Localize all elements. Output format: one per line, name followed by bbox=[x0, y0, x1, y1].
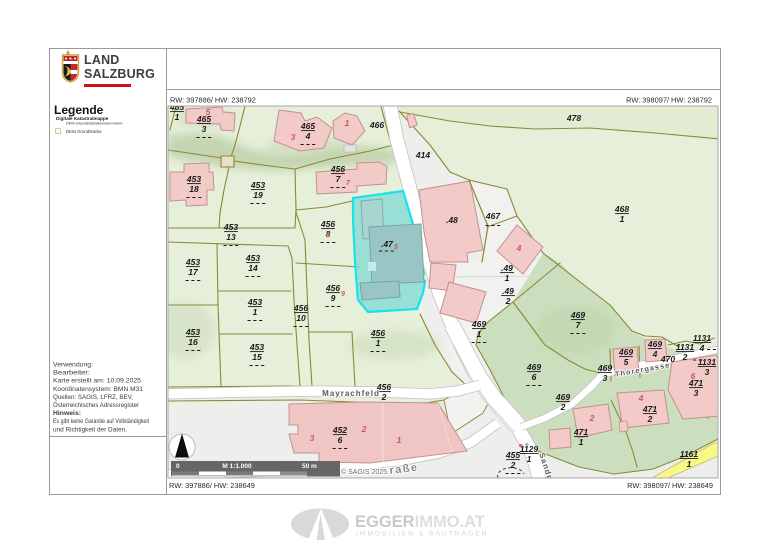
svg-text:Österreichisches Adressregiste: Österreichisches Adressregister bbox=[53, 401, 140, 409]
svg-text:453: 453 bbox=[247, 297, 262, 307]
svg-text:1: 1 bbox=[477, 329, 482, 339]
svg-text:453: 453 bbox=[223, 222, 238, 232]
svg-text:15: 15 bbox=[252, 352, 262, 362]
svg-text:0: 0 bbox=[176, 463, 180, 470]
svg-text:468: 468 bbox=[614, 204, 629, 214]
svg-text:Legende: Legende bbox=[54, 103, 104, 117]
svg-text:452: 452 bbox=[332, 425, 347, 435]
svg-text:Bearbeiter:: Bearbeiter: bbox=[53, 370, 90, 377]
svg-text:5: 5 bbox=[624, 357, 629, 367]
svg-text:3: 3 bbox=[705, 367, 710, 377]
svg-text:471: 471 bbox=[642, 404, 657, 414]
svg-text:456: 456 bbox=[325, 283, 340, 293]
svg-text:.49: .49 bbox=[501, 263, 513, 273]
svg-text:4: 4 bbox=[638, 393, 644, 403]
svg-text:471: 471 bbox=[573, 427, 588, 437]
svg-text:.47: .47 bbox=[381, 239, 394, 249]
svg-text:18: 18 bbox=[189, 184, 199, 194]
svg-text:456: 456 bbox=[320, 219, 335, 229]
svg-text:Karte erstellt am: 10.09.2025: Karte erstellt am: 10.09.2025 bbox=[53, 378, 141, 385]
svg-text:19: 19 bbox=[253, 190, 263, 200]
svg-text:465: 465 bbox=[300, 121, 315, 131]
svg-text:453: 453 bbox=[186, 174, 201, 184]
svg-text:453: 453 bbox=[245, 253, 260, 263]
svg-text:.48: .48 bbox=[446, 215, 458, 225]
svg-text:3: 3 bbox=[694, 388, 699, 398]
svg-text:414: 414 bbox=[415, 150, 430, 160]
svg-text:2: 2 bbox=[381, 392, 387, 402]
svg-text:IMMOBILIEN & BAUTRÄGER: IMMOBILIEN & BAUTRÄGER bbox=[356, 530, 488, 538]
svg-text:1129: 1129 bbox=[520, 444, 539, 454]
svg-text:1: 1 bbox=[620, 214, 625, 224]
svg-text:EGGERIMMO.AT: EGGERIMMO.AT bbox=[355, 513, 485, 531]
svg-text:9: 9 bbox=[331, 293, 336, 303]
svg-text:469: 469 bbox=[597, 363, 612, 373]
svg-text:Verwendung:: Verwendung: bbox=[53, 362, 93, 369]
svg-text:469: 469 bbox=[555, 392, 570, 402]
svg-text:2: 2 bbox=[505, 296, 511, 306]
svg-text:50 m: 50 m bbox=[302, 463, 317, 470]
svg-text:17: 17 bbox=[188, 267, 199, 277]
svg-text:13: 13 bbox=[226, 232, 236, 242]
svg-text:DKM Grundstückskennnummern: DKM Grundstückskennnummern bbox=[66, 121, 122, 126]
svg-text:2: 2 bbox=[682, 352, 688, 362]
svg-text:© SAGIS 2025: © SAGIS 2025 bbox=[341, 468, 387, 476]
svg-text:und Richtigkeit der Daten.: und Richtigkeit der Daten. bbox=[53, 426, 127, 433]
svg-text:Hinweis:: Hinweis: bbox=[53, 410, 81, 417]
svg-text:1131: 1131 bbox=[693, 333, 712, 343]
svg-text:3: 3 bbox=[603, 373, 608, 383]
svg-text:14: 14 bbox=[248, 263, 258, 273]
svg-text:465: 465 bbox=[196, 114, 211, 124]
svg-text:453: 453 bbox=[249, 342, 264, 352]
svg-text:9: 9 bbox=[341, 291, 345, 298]
svg-text:469: 469 bbox=[570, 310, 585, 320]
svg-text:469: 469 bbox=[471, 319, 486, 329]
svg-text:1: 1 bbox=[376, 338, 381, 348]
svg-text:456: 456 bbox=[293, 303, 308, 313]
svg-text:467: 467 bbox=[485, 211, 501, 221]
svg-text:16: 16 bbox=[188, 337, 198, 347]
svg-text:5: 5 bbox=[394, 244, 398, 251]
svg-text:1: 1 bbox=[505, 273, 510, 283]
svg-text:Koordinatensystem: BMN M31: Koordinatensystem: BMN M31 bbox=[53, 386, 143, 393]
svg-text:1: 1 bbox=[527, 454, 532, 464]
svg-text:453: 453 bbox=[185, 327, 200, 337]
svg-text:2: 2 bbox=[589, 413, 595, 423]
svg-text:469: 469 bbox=[618, 347, 633, 357]
svg-text:RW: 397886/ HW: 238649: RW: 397886/ HW: 238649 bbox=[169, 481, 255, 490]
svg-text:1: 1 bbox=[687, 459, 692, 469]
svg-text:4: 4 bbox=[652, 349, 658, 359]
svg-text:469: 469 bbox=[647, 339, 662, 349]
svg-text:Es gibt keine Garantie auf Vol: Es gibt keine Garantie auf Vollständigke… bbox=[53, 418, 149, 425]
svg-text:Mayrachfeld: Mayrachfeld bbox=[322, 389, 380, 398]
svg-text:1161: 1161 bbox=[680, 449, 699, 459]
svg-text:455: 455 bbox=[505, 450, 520, 460]
svg-text:M 1:1.000: M 1:1.000 bbox=[222, 463, 252, 470]
svg-text:453: 453 bbox=[250, 180, 265, 190]
svg-text:10: 10 bbox=[296, 313, 306, 323]
svg-text:456: 456 bbox=[370, 328, 385, 338]
svg-text:1: 1 bbox=[253, 307, 258, 317]
svg-text:Quellen: SAGIS, LFRZ, BEV,: Quellen: SAGIS, LFRZ, BEV, bbox=[53, 394, 133, 401]
svg-text:3: 3 bbox=[291, 132, 296, 142]
svg-text:3: 3 bbox=[310, 433, 315, 443]
svg-text:1: 1 bbox=[345, 118, 350, 128]
svg-text:466: 466 bbox=[369, 120, 384, 130]
svg-text:456: 456 bbox=[330, 164, 345, 174]
svg-text:3: 3 bbox=[202, 124, 207, 134]
svg-text:2: 2 bbox=[361, 424, 367, 434]
svg-text:6: 6 bbox=[338, 435, 343, 445]
svg-text:1131: 1131 bbox=[676, 342, 695, 352]
svg-text:LAND: LAND bbox=[84, 53, 120, 67]
svg-text:2: 2 bbox=[647, 414, 653, 424]
svg-text:RW: 398097/ HW: 238649: RW: 398097/ HW: 238649 bbox=[627, 481, 713, 490]
svg-text:4: 4 bbox=[305, 131, 311, 141]
svg-text:1: 1 bbox=[175, 112, 180, 122]
svg-text:471: 471 bbox=[688, 378, 703, 388]
svg-text:.49: .49 bbox=[502, 286, 514, 296]
svg-text:DKM Grundstücke: DKM Grundstücke bbox=[66, 129, 102, 134]
svg-text:2: 2 bbox=[560, 402, 566, 412]
svg-text:4: 4 bbox=[516, 243, 522, 253]
svg-text:4: 4 bbox=[699, 343, 705, 353]
svg-text:RW: 397886/ HW: 238792: RW: 397886/ HW: 238792 bbox=[170, 96, 256, 105]
svg-text:SALZBURG: SALZBURG bbox=[84, 67, 155, 81]
svg-text:453: 453 bbox=[185, 257, 200, 267]
svg-text:469: 469 bbox=[526, 362, 541, 372]
svg-text:RW: 398097/ HW: 238792: RW: 398097/ HW: 238792 bbox=[626, 96, 712, 105]
svg-text:478: 478 bbox=[566, 113, 581, 123]
svg-text:1: 1 bbox=[397, 435, 402, 445]
svg-text:6: 6 bbox=[532, 372, 537, 382]
svg-text:1131: 1131 bbox=[698, 357, 717, 367]
svg-text:1: 1 bbox=[579, 437, 584, 447]
